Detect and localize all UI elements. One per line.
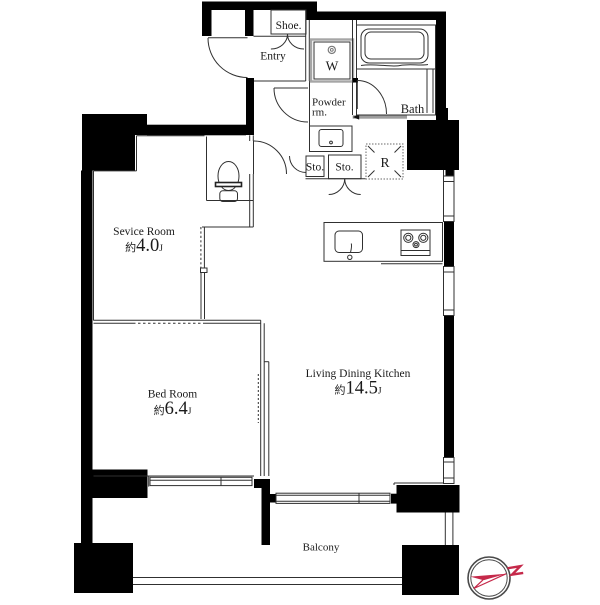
svg-text:Entry: Entry bbox=[260, 51, 286, 63]
svg-text:R: R bbox=[380, 155, 389, 170]
svg-text:Sto.: Sto. bbox=[306, 162, 324, 174]
svg-text:Balcony: Balcony bbox=[303, 542, 340, 554]
svg-text:Shoe.: Shoe. bbox=[276, 20, 302, 32]
svg-text:W: W bbox=[326, 59, 339, 74]
svg-text:Sto.: Sto. bbox=[335, 162, 353, 174]
svg-text:rm.: rm. bbox=[312, 107, 327, 119]
svg-text:Bath: Bath bbox=[401, 102, 425, 116]
